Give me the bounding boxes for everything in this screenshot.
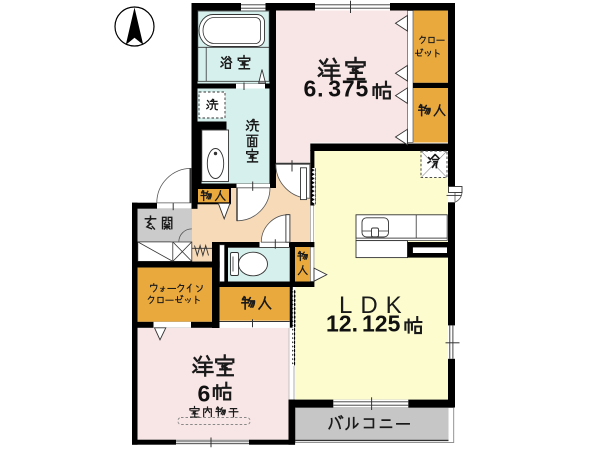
svg-text:6.375: 6.375 <box>304 76 370 102</box>
svg-text:12.125: 12.125 <box>326 310 401 336</box>
svg-text:6: 6 <box>198 381 211 407</box>
